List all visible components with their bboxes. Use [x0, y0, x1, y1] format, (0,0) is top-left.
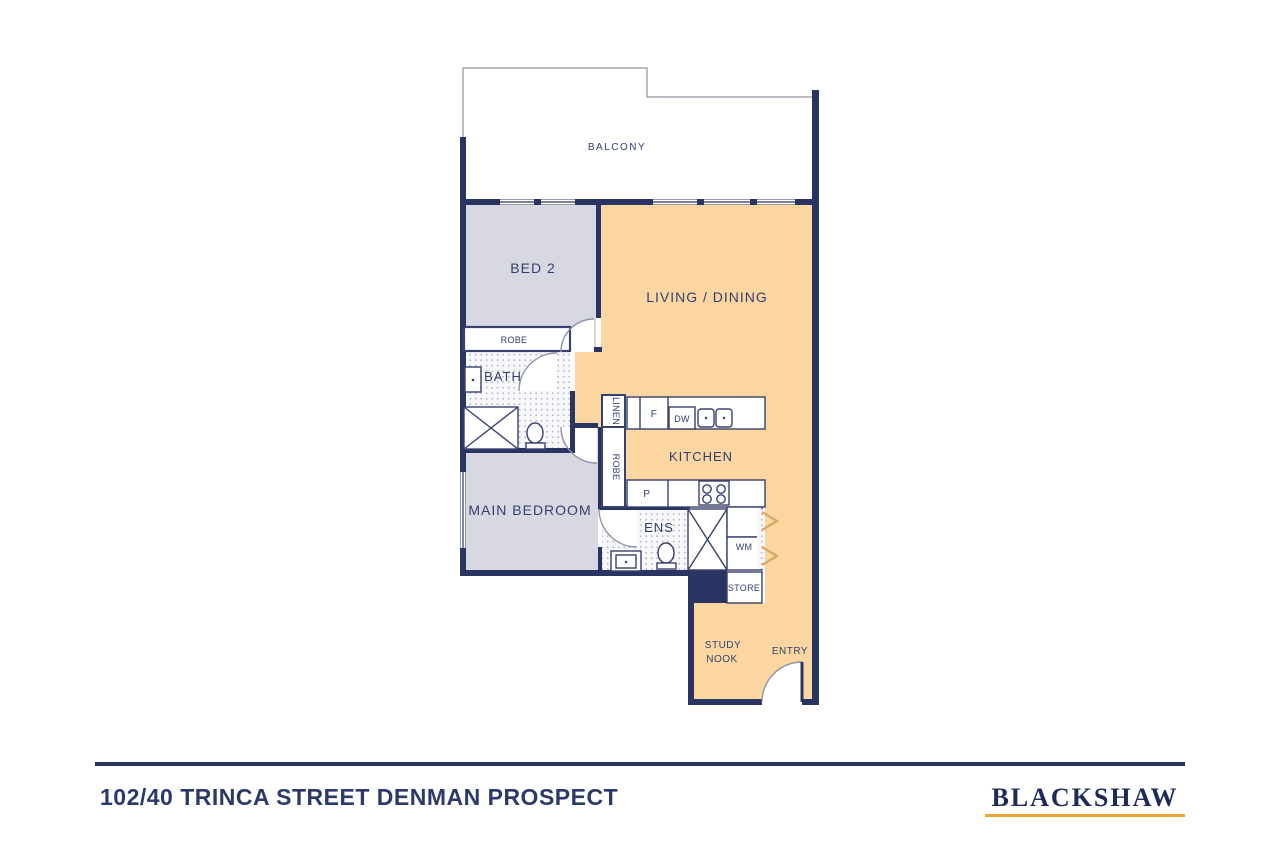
blackshaw-logo-text: BLACKSHAW [985, 783, 1185, 813]
floorplan-page: BALCONY BED 2 LIVING / DINING ROBE BATH … [0, 0, 1280, 853]
living-dining-label: LIVING / DINING [646, 289, 768, 305]
blackshaw-logo-underline [985, 814, 1185, 817]
pantry-label: P [643, 489, 650, 500]
wall-study-bottom-left [688, 699, 762, 705]
store-label: STORE [728, 583, 760, 593]
robe-main-label: ROBE [611, 454, 621, 481]
bath-label: BATH [484, 369, 522, 384]
kitchen-label: KITCHEN [669, 449, 733, 464]
wall-balcony-left [460, 137, 466, 205]
wall-solid-block [688, 570, 727, 603]
laundry-door-track [757, 509, 765, 569]
fridge-label: F [651, 409, 658, 420]
wall-bed2-living [596, 205, 601, 318]
washing-machine-label: WM [736, 542, 753, 552]
linen-label: LINEN [611, 397, 621, 425]
window-tick [750, 199, 757, 205]
balcony-label: BALCONY [588, 142, 646, 153]
wall-bath-right [570, 391, 575, 448]
laundry-upper-box [727, 507, 762, 537]
footer-divider [95, 762, 1185, 766]
blackshaw-logo: BLACKSHAW [985, 783, 1185, 817]
window-tick [697, 199, 704, 205]
study-nook-label-2: NOOK [706, 654, 737, 665]
study-nook-label-1: STUDY [705, 640, 741, 651]
window-tick [534, 199, 541, 205]
room-side-strip [765, 397, 813, 603]
bed2-label: BED 2 [510, 260, 555, 276]
window-tick [460, 548, 466, 553]
bath-shower [464, 407, 518, 449]
balcony-outline [463, 68, 816, 200]
robe-bed2-label: ROBE [501, 335, 528, 345]
ensuite-label: ENS [644, 520, 674, 535]
ensuite-toilet [657, 543, 676, 569]
floorplan-drawing: BALCONY BED 2 LIVING / DINING ROBE BATH … [0, 0, 1280, 853]
wall-bedroom-bottom [460, 570, 727, 576]
property-address: 102/40 TRINCA STREET DENMAN PROSPECT [100, 784, 618, 811]
window-tick [460, 467, 466, 472]
room-hallway [575, 352, 601, 427]
balcony-area [463, 68, 816, 200]
wall-study-left [688, 603, 694, 705]
wall-study-bottom-right [802, 699, 818, 705]
main-bedroom-label: MAIN BEDROOM [468, 502, 591, 518]
dishwasher-label: DW [674, 414, 690, 424]
kitchen-top-bench [627, 397, 765, 429]
bath-toilet [526, 423, 545, 449]
wall-right [812, 90, 819, 705]
entry-label: ENTRY [772, 646, 808, 657]
ensuite-sink [611, 551, 641, 571]
wall-hall-bedroom [570, 423, 598, 428]
wall-bed2-door-stub [594, 347, 602, 352]
ensuite-shower [688, 509, 727, 570]
wall-ensuite-left-lower [598, 547, 602, 570]
